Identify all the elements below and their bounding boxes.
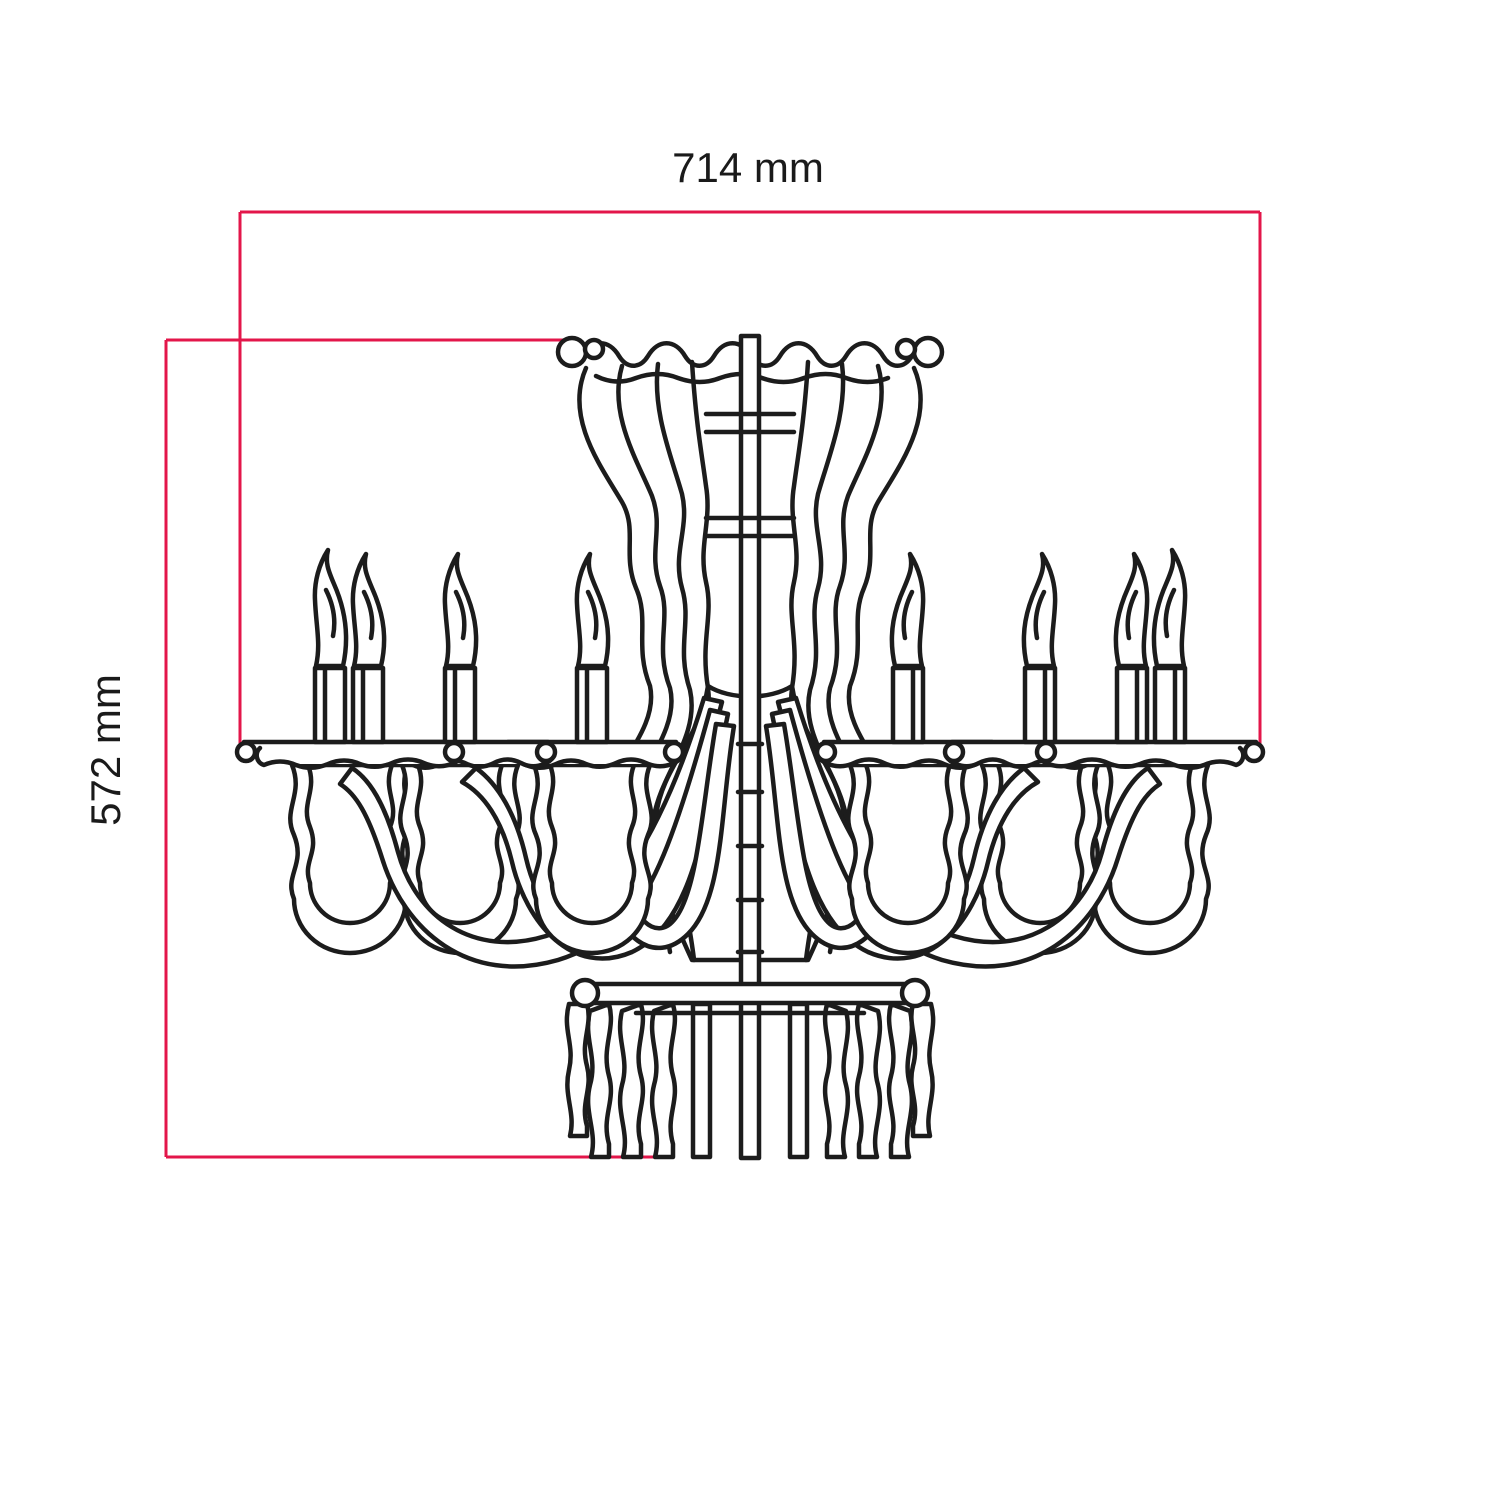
chandelier-half xyxy=(766,362,1263,1157)
rim-knob-right xyxy=(914,338,942,366)
height-dimension-label: 572 mm xyxy=(82,674,129,826)
width-dimension-label: 714 mm xyxy=(672,144,824,191)
inner-bell-pendant xyxy=(848,765,967,953)
candles xyxy=(893,668,1185,742)
chandelier-technical-drawing: 714 mm 572 mm xyxy=(0,0,1500,1500)
bar-knob-left xyxy=(572,980,598,1006)
bar-knob-right xyxy=(902,980,928,1006)
chandelier-half-mirrored xyxy=(237,362,734,1157)
skirt-fingers xyxy=(790,1004,933,1157)
flames xyxy=(892,550,1185,666)
rim-knob-left xyxy=(558,338,586,366)
chandelier-drawing xyxy=(237,336,1263,1158)
drawing-canvas: 714 mm 572 mm xyxy=(0,0,1500,1500)
